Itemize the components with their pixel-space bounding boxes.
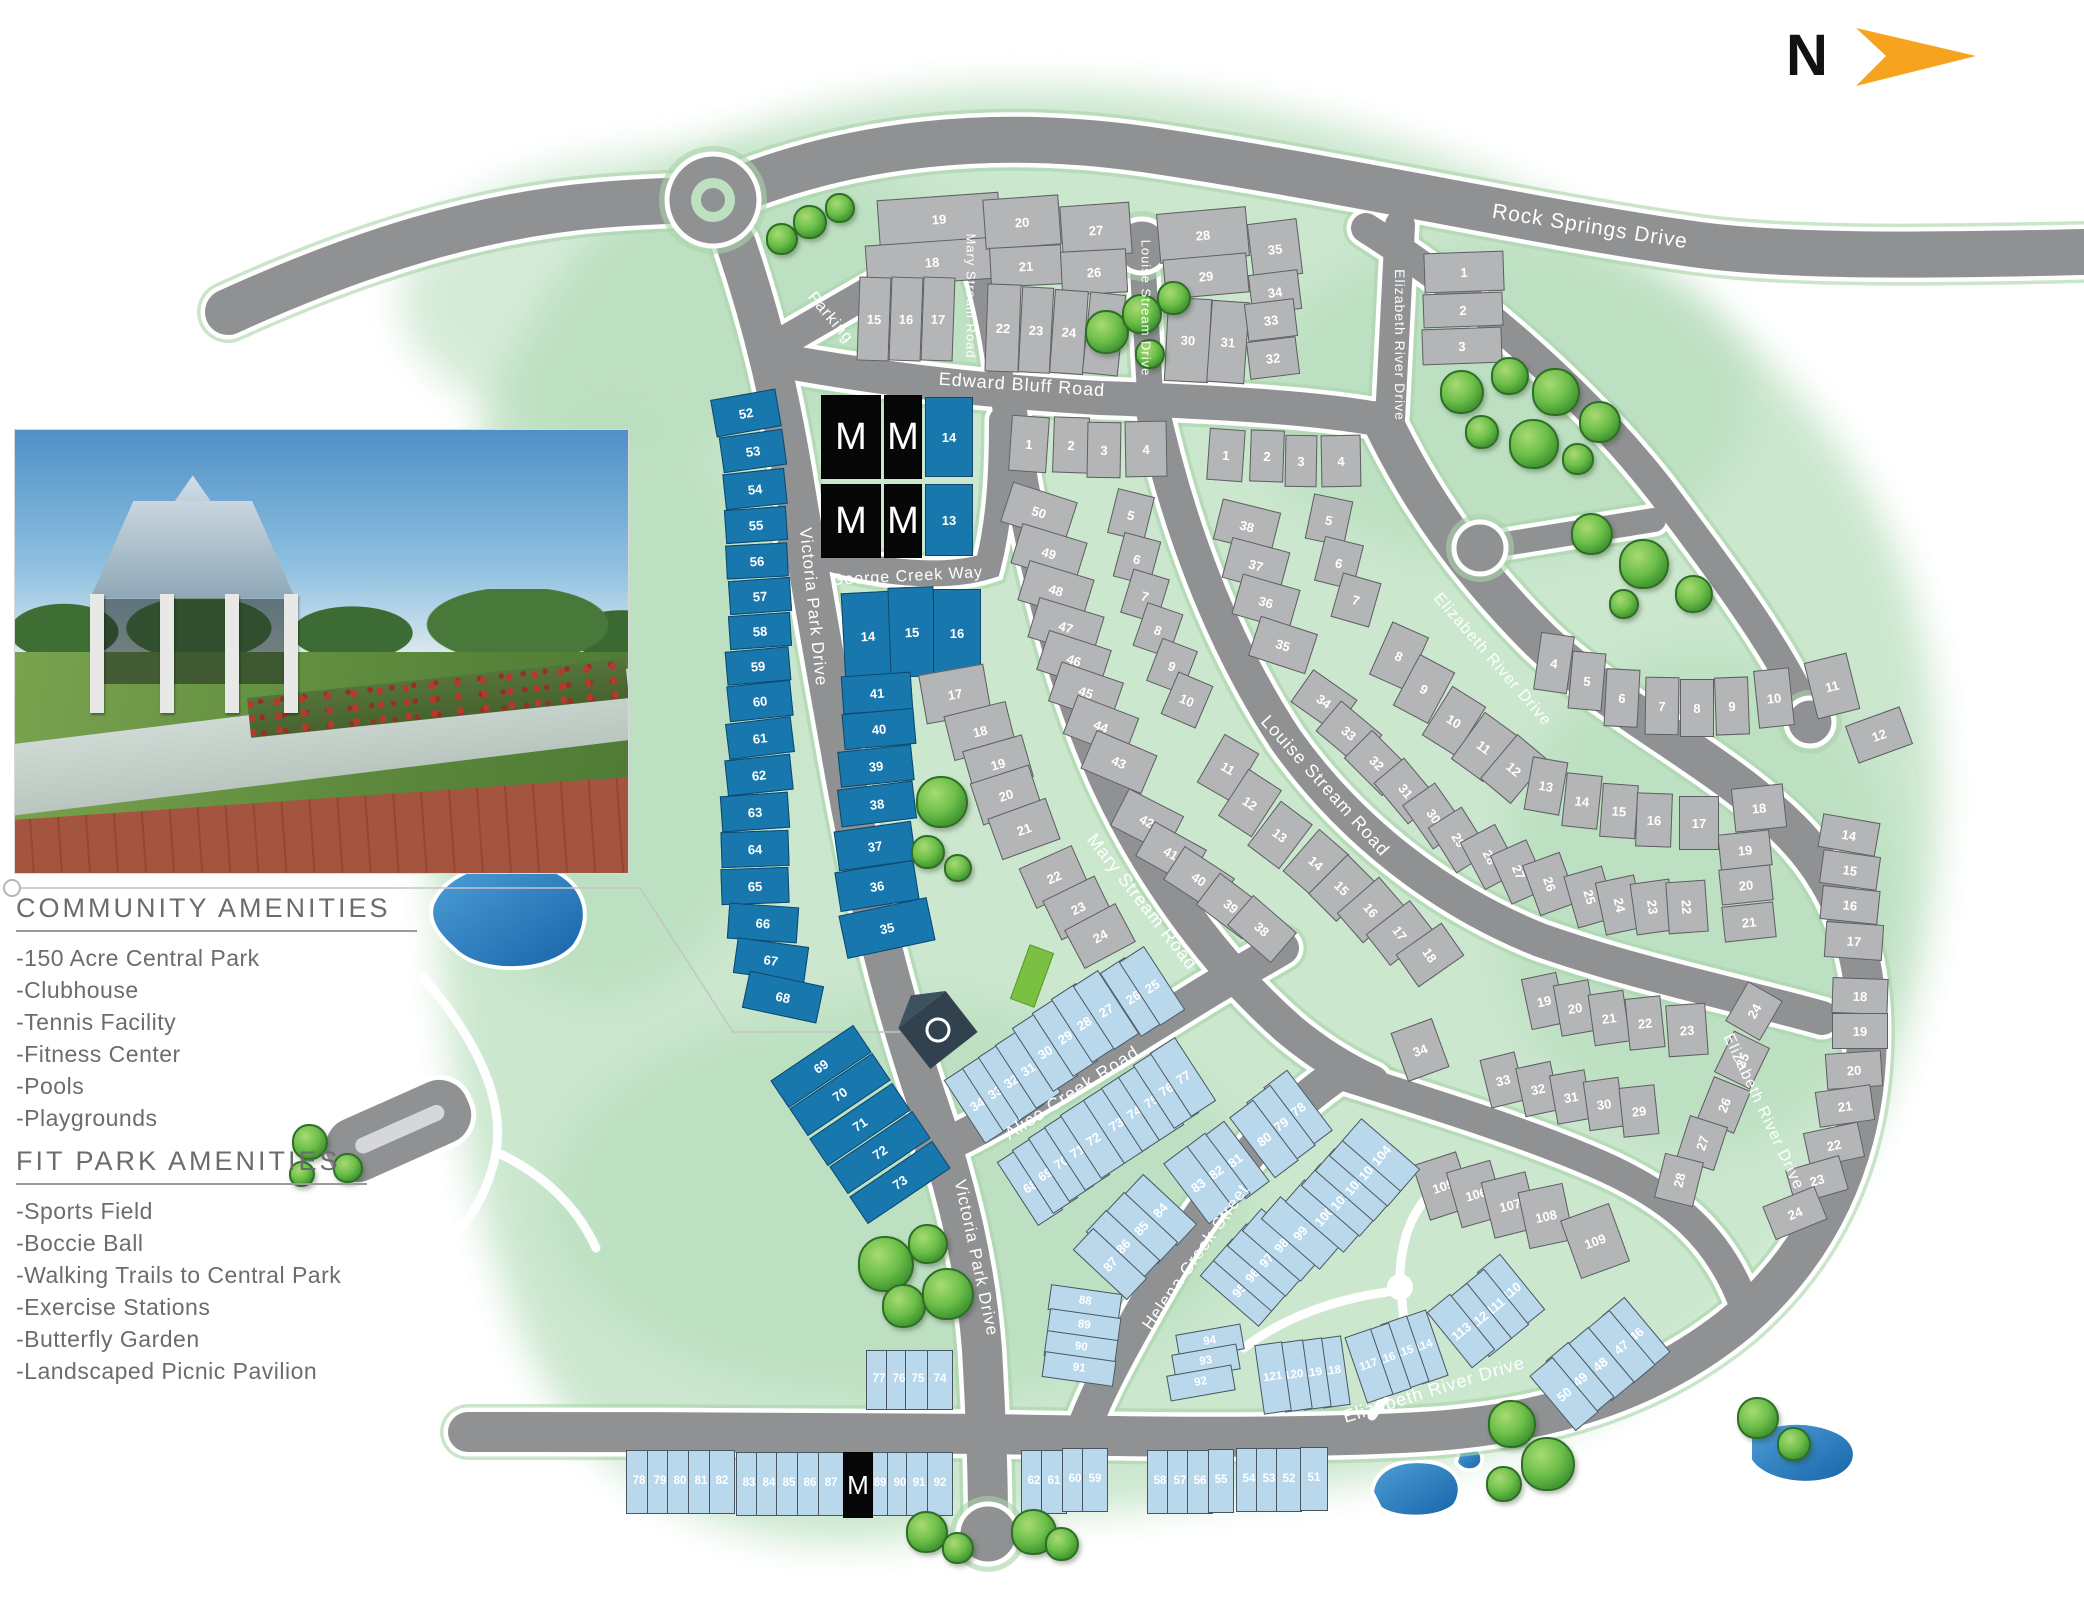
- tree-icon: [1045, 1527, 1079, 1561]
- tree-icon: [1521, 1437, 1575, 1491]
- north-indicator: N: [1778, 14, 1998, 104]
- model-home-lot: M: [843, 1452, 873, 1518]
- lot-gray-loop-north-8: 8: [1680, 679, 1714, 737]
- tree-icon: [882, 1284, 926, 1328]
- fit-park-amenities-title: FIT PARK AMENITIES: [16, 1146, 367, 1185]
- lot-top-mid-21: 21: [989, 244, 1063, 288]
- community-amenity-item: -Fitness Center: [16, 1038, 417, 1070]
- lot-top-east-33: 33: [1244, 298, 1298, 342]
- lot-lb-bottom-east-52: 52: [1276, 1448, 1302, 1512]
- lot-gray-block-west-4: 4: [1125, 421, 1168, 478]
- tree-icon: [908, 1224, 948, 1264]
- lot-gray-loop-north-10: 10: [1753, 667, 1795, 728]
- lot-db-west-strip-55: 55: [724, 506, 788, 544]
- lot-db-gcw-15: 15: [887, 586, 936, 678]
- lot-top-mid-23: 23: [1018, 286, 1054, 374]
- tree-icon: [1579, 401, 1621, 443]
- tree-icon: [1465, 415, 1499, 449]
- lot-gray-block-east-21: 21: [1721, 901, 1776, 942]
- fit-park-amenity-item: -Boccie Ball: [16, 1227, 367, 1259]
- tree-icon: [1737, 1397, 1779, 1439]
- lot-gray-loop-inner-15: 15: [1599, 783, 1639, 839]
- photo-pavilion-post: [284, 594, 297, 713]
- lot-gray-right-col-18: 18: [1831, 977, 1888, 1015]
- lot-ne-123-1: 1: [1423, 251, 1504, 294]
- tree-icon: [1488, 1400, 1536, 1448]
- lot-lb-74-77-74: 74: [927, 1350, 953, 1410]
- lot-gray-loop-north-6: 6: [1604, 668, 1641, 728]
- lot-top-mid-20: 20: [982, 194, 1061, 249]
- fit-park-amenities-list: -Sports Field-Boccie Ball-Walking Trails…: [16, 1195, 367, 1387]
- lot-top-mid-26: 26: [1060, 248, 1128, 295]
- lot-db-west-strip-63: 63: [720, 792, 790, 833]
- lot-gray-right-col-21: 21: [1815, 1084, 1875, 1127]
- lot-gray-right-col-17: 17: [1824, 921, 1884, 961]
- lot-top-mid-22: 22: [984, 283, 1021, 372]
- lot-gray-loop-north-5: 5: [1568, 651, 1607, 712]
- lot-lb-bottom-east-59: 59: [1082, 1448, 1108, 1512]
- community-amenities-title: COMMUNITY AMENITIES: [16, 893, 417, 932]
- tree-icon: [1440, 370, 1484, 414]
- lot-gray-loop-north-7: 7: [1644, 677, 1679, 736]
- lot-gray-right-col-19: 19: [1832, 1013, 1888, 1049]
- lot-gray-block-east-20: 20: [1718, 864, 1773, 905]
- tree-icon: [1777, 1427, 1811, 1461]
- tree-icon: [1532, 368, 1580, 416]
- tree-icon: [1509, 419, 1559, 469]
- north-letter: N: [1786, 22, 1828, 89]
- community-amenities-list: -150 Acre Central Park-Clubhouse-Tennis …: [16, 942, 417, 1134]
- photo-pavilion-post: [90, 594, 103, 713]
- path-circle: [1387, 1274, 1413, 1300]
- tree-icon: [1609, 589, 1639, 619]
- tree-icon: [944, 854, 972, 882]
- fit-park-amenities-panel: FIT PARK AMENITIES -Sports Field-Boccie …: [16, 1146, 367, 1387]
- tree-icon: [922, 1268, 974, 1320]
- tree-icon: [942, 1532, 974, 1564]
- fit-park-amenity-item: -Walking Trails to Central Park: [16, 1259, 367, 1291]
- community-amenity-item: -Playgrounds: [16, 1102, 417, 1134]
- tree-icon: [911, 835, 945, 869]
- lot-gray-right-col-16: 16: [1819, 885, 1880, 925]
- lot-top-east-31: 31: [1206, 300, 1250, 384]
- lot-lb-bottom-west-92: 92: [927, 1452, 953, 1516]
- tree-icon: [1157, 281, 1191, 315]
- lot-db-13-14-14: 14: [925, 397, 973, 477]
- lot-top-west-16: 16: [889, 276, 924, 361]
- community-amenity-item: -150 Acre Central Park: [16, 942, 417, 974]
- lot-db-west-strip-57: 57: [728, 577, 792, 615]
- lot-gray-block-west-1: 1: [1008, 415, 1050, 474]
- lot-db-gcw-16: 16: [933, 589, 981, 677]
- lot-gray-south-arc-30: 30: [1583, 1077, 1626, 1132]
- site-map-canvas: 1918151617202721262223242528352934303133…: [0, 0, 2084, 1600]
- model-home-lot: M: [821, 395, 881, 479]
- model-home-lot: M: [884, 484, 922, 558]
- culdesac: [1454, 522, 1506, 574]
- road-label-mary-stream-road: Mary Stream Road: [964, 233, 979, 358]
- lot-top-west-15: 15: [857, 276, 892, 361]
- lot-ne-123-2: 2: [1422, 292, 1503, 329]
- fit-park-amenity-item: -Exercise Stations: [16, 1291, 367, 1323]
- lot-top-east-32: 32: [1246, 336, 1300, 380]
- community-amenities-panel: COMMUNITY AMENITIES -150 Acre Central Pa…: [16, 893, 417, 1134]
- photo-pavilion-post: [225, 594, 238, 713]
- pond: [1372, 1461, 1460, 1517]
- lot-db-west-strip-65: 65: [720, 867, 789, 905]
- lot-gray-south-arc-29: 29: [1618, 1084, 1659, 1137]
- fit-park-amenity-item: -Butterfly Garden: [16, 1323, 367, 1355]
- fit-park-amenity-item: -Landscaped Picnic Pavilion: [16, 1355, 367, 1387]
- tree-icon: [793, 205, 827, 239]
- lot-gray-block-east-1: 1: [1206, 428, 1246, 482]
- lot-gray-block-east-22: 22: [1665, 880, 1709, 935]
- fit-park-amenity-item: -Sports Field: [16, 1195, 367, 1227]
- tree-icon: [1619, 539, 1669, 589]
- lot-gray-block-east-4: 4: [1321, 435, 1362, 488]
- road-label-elizabeth-river-drive: Elizabeth River Drive: [1392, 269, 1408, 421]
- road-label-louise-stream-drive: Louise Stream Drive: [1139, 240, 1154, 377]
- lot-lb-bottom-east-55: 55: [1208, 1449, 1234, 1513]
- lot-lb-bottom-east-51: 51: [1300, 1447, 1328, 1511]
- model-home-lot: M: [821, 484, 881, 558]
- lot-lb-bottom-west-87: 87: [818, 1452, 844, 1516]
- lot-db-west-strip-64: 64: [720, 830, 789, 868]
- lot-gray-loop-inner-17: 17: [1679, 796, 1719, 850]
- lot-gray-loop-north-9: 9: [1714, 676, 1750, 735]
- photo-pavilion-shade: [101, 599, 284, 684]
- community-amenity-item: -Clubhouse: [16, 974, 417, 1006]
- lot-db-13-14-13: 13: [925, 484, 973, 556]
- lot-top-west-17: 17: [921, 276, 956, 361]
- lot-gray-loop-inner-16: 16: [1635, 792, 1673, 847]
- tree-icon: [916, 776, 968, 828]
- lot-db-west-strip-62: 62: [724, 754, 793, 797]
- photo-pavilion-roof: [58, 501, 328, 599]
- lot-gray-block-west-3: 3: [1087, 422, 1122, 479]
- community-amenity-item: -Tennis Facility: [16, 1006, 417, 1038]
- tree-icon: [1491, 357, 1529, 395]
- photo-pavilion: [58, 501, 328, 714]
- lot-gray-right-col-20: 20: [1825, 1050, 1883, 1090]
- photo-inset-pavilion: [15, 430, 628, 873]
- lot-gray-block-east-2: 2: [1249, 429, 1285, 482]
- lot-db-west-strip-56: 56: [725, 542, 789, 579]
- lot-gray-loop-inner-18: 18: [1731, 783, 1787, 832]
- lot-gray-block-east-3: 3: [1285, 435, 1318, 488]
- tree-icon: [1675, 575, 1713, 613]
- lot-gray-block-west-2: 2: [1052, 416, 1090, 473]
- lot-db-west-strip-54: 54: [722, 468, 787, 510]
- tree-icon: [825, 193, 855, 223]
- tree-icon: [1562, 443, 1594, 475]
- tree-icon: [1571, 513, 1613, 555]
- lot-gray-south-arc-23: 23: [1665, 1003, 1709, 1058]
- lot-ne-123-3: 3: [1421, 327, 1502, 366]
- lot-db-west-strip-58: 58: [728, 612, 792, 650]
- tree-icon: [1486, 1466, 1522, 1502]
- lot-gray-south-arc-22: 22: [1624, 995, 1665, 1050]
- model-home-lot: M: [884, 395, 922, 479]
- lot-gray-loop-inner-14: 14: [1561, 772, 1602, 829]
- north-arrow-icon: [1838, 18, 1988, 98]
- community-amenity-item: -Pools: [16, 1070, 417, 1102]
- lot-lb-bottom-west-82: 82: [709, 1450, 735, 1514]
- photo-pavilion-post: [160, 594, 173, 713]
